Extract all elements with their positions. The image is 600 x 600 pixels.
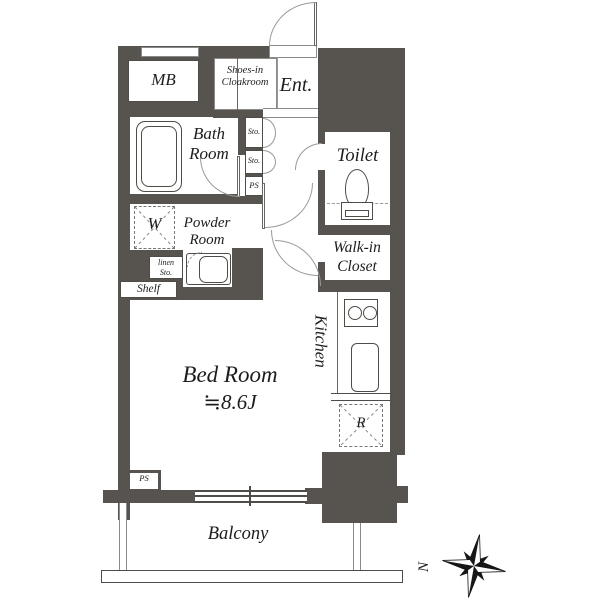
label-wic-line1: Walk-in <box>322 239 392 258</box>
wall-wic-bottom <box>318 280 390 292</box>
kitchen-sink <box>351 343 379 392</box>
toilet-door-swing-arc <box>295 143 322 170</box>
bathtub-inner <box>141 126 177 187</box>
top-wall-window <box>141 47 199 57</box>
wall-right-nub <box>395 486 408 503</box>
balcony-post-right <box>353 523 361 570</box>
label-linen-line2: Sto. <box>149 268 183 278</box>
label-bedroom-area: ≒8.6J <box>130 391 330 414</box>
balcony-slab <box>101 570 403 583</box>
stove-burner <box>348 306 362 320</box>
label-powder-room: Powder Room <box>170 215 244 249</box>
genkan-step <box>263 108 318 118</box>
label-walk-in-closet: Walk-in Closet <box>322 239 392 276</box>
label-mb: MB <box>128 71 199 90</box>
compass-north-label: N <box>416 555 436 579</box>
wall-bath-bottom <box>118 194 245 204</box>
label-sto-upper: Sto. <box>243 128 265 137</box>
floor-plan: N MB Shoes-in Cloakroom Ent. Bath Room S… <box>0 0 600 600</box>
washstand-basin <box>199 256 228 283</box>
label-linen-sto: linen Sto. <box>149 258 183 277</box>
label-shoes-line2: Cloakroom <box>211 77 279 89</box>
label-bath-line1: Bath <box>180 124 238 144</box>
wall-powder-hall-bottom <box>232 248 263 290</box>
balcony-post-left <box>119 503 127 570</box>
toilet-tank-inner <box>345 210 369 217</box>
label-linen-line1: linen <box>149 258 183 268</box>
powder-door-swing-arc <box>265 183 313 228</box>
wall-window-column <box>305 488 322 504</box>
label-shoes-line1: Shoes-in <box>211 65 279 77</box>
label-toilet: Toilet <box>325 146 390 166</box>
label-shelf: Shelf <box>120 283 177 296</box>
compass <box>440 532 508 600</box>
label-ps-hall: PS <box>243 181 265 190</box>
sliding-window-tick <box>249 486 251 506</box>
label-balcony: Balcony <box>158 524 318 544</box>
wall-top-right-block <box>318 48 405 132</box>
entrance-door-swing-arc <box>269 2 316 46</box>
kitchen-counter-edge <box>337 292 338 394</box>
label-wic-line2: Closet <box>322 258 392 277</box>
label-ps-bottom: PS <box>127 474 161 483</box>
wall-right <box>390 132 405 455</box>
counter-end-band <box>331 393 390 401</box>
stove-burner <box>363 306 377 320</box>
label-fridge: R <box>339 415 383 432</box>
compass-rose-icon <box>440 532 508 600</box>
label-powder-line1: Powder <box>170 215 244 232</box>
label-shoes-cloakroom: Shoes-in Cloakroom <box>211 65 279 89</box>
sliding-window-rail <box>195 495 307 497</box>
wall-toilet-wic <box>318 225 390 235</box>
label-bath-line2: Room <box>180 144 238 164</box>
label-bathroom: Bath Room <box>180 124 238 164</box>
label-entrance: Ent. <box>270 74 322 96</box>
wall-big-column <box>322 452 397 523</box>
wall-toilet-left-b <box>318 170 325 225</box>
compass-north-text: N <box>416 562 432 572</box>
label-washer: W <box>134 215 175 233</box>
label-sto-lower: Sto. <box>243 157 265 166</box>
entrance-threshold <box>269 45 317 58</box>
label-powder-line2: Room <box>170 232 244 249</box>
label-bedroom-name: Bed Room <box>130 362 330 387</box>
